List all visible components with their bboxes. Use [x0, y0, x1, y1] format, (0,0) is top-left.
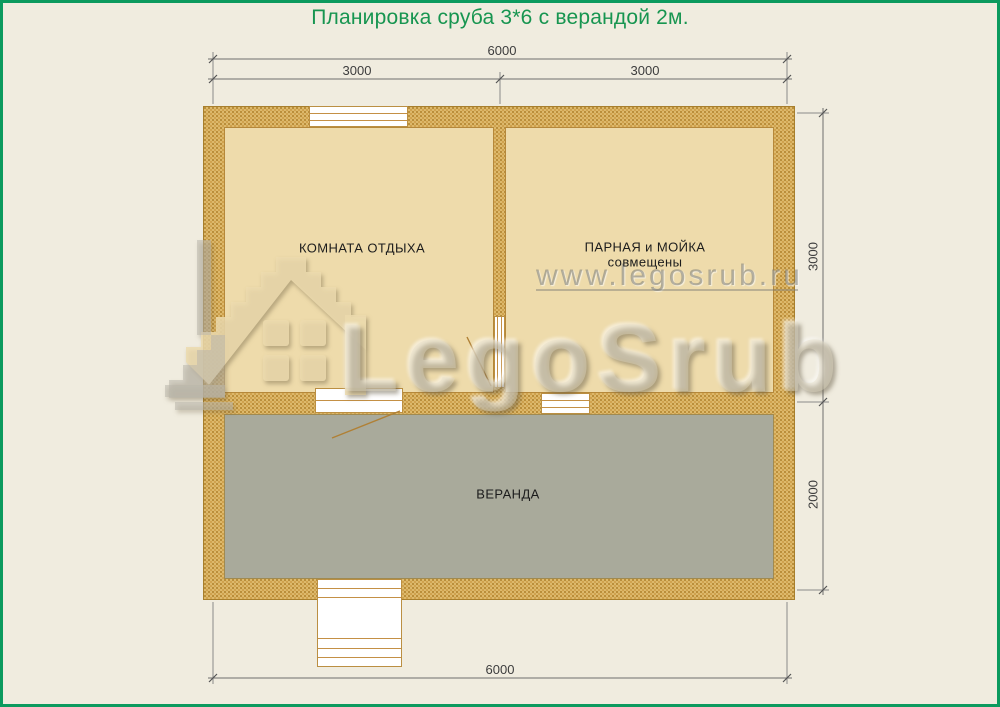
door-rest-to-steam	[494, 316, 505, 388]
window-glazing-line	[310, 120, 407, 121]
page-frame: Планировка сруба 3*6 с верандой 2м.	[0, 0, 1000, 707]
dim-top-left: 3000	[327, 63, 387, 78]
dim-top-right: 3000	[615, 63, 675, 78]
door-jamb-line	[497, 317, 498, 387]
window-glazing-line	[542, 407, 589, 408]
room-steam-label: ПАРНАЯ и МОЙКА	[585, 240, 706, 255]
door-leaf-line	[316, 400, 402, 401]
step-line	[318, 588, 401, 589]
window-glazing-line	[542, 400, 589, 401]
dim-top-total: 6000	[472, 43, 532, 58]
room-rest-area	[224, 127, 494, 393]
page-title: Планировка сруба 3*6 с верандой 2м.	[0, 6, 1000, 30]
dim-side-main: 3000	[806, 227, 821, 287]
step-line	[318, 648, 401, 649]
dim-bottom-total: 6000	[470, 662, 530, 677]
entrance-steps	[317, 579, 402, 667]
step-line	[318, 638, 401, 639]
door-rest-to-veranda	[315, 388, 403, 413]
step-line	[318, 597, 401, 598]
door-jamb-line	[501, 317, 502, 387]
room-steam-sublabel: совмещены	[608, 255, 683, 270]
dim-side-veranda: 2000	[806, 465, 821, 525]
room-rest-label: КОМНАТА ОТДЫХА	[299, 241, 425, 256]
step-line	[318, 657, 401, 658]
window-steam-room	[541, 393, 590, 414]
window-glazing-line	[310, 113, 407, 114]
window-rest-room	[309, 106, 408, 127]
veranda-label: ВЕРАНДА	[476, 487, 539, 502]
